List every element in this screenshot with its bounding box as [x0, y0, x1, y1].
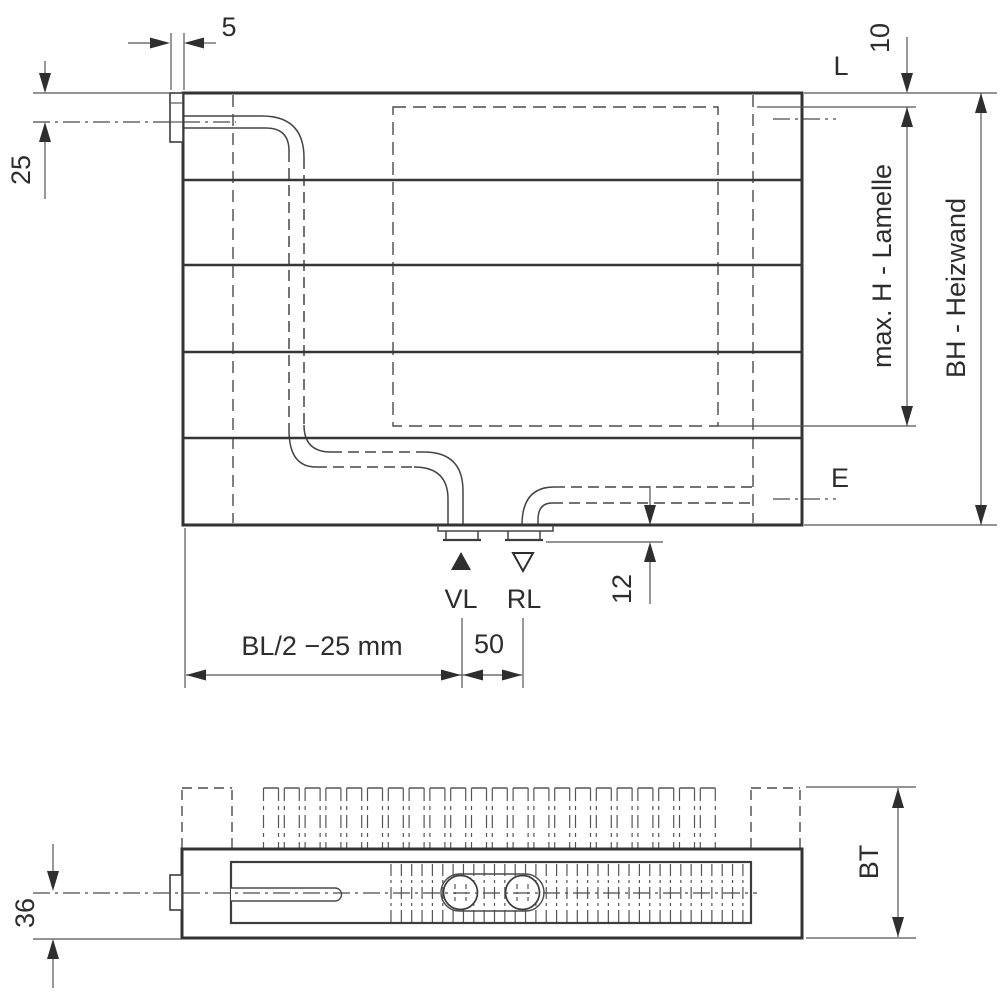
arrowhead — [644, 505, 656, 525]
flow-label: VL — [444, 584, 477, 614]
dim-pipe-axis-offset-label: 25 — [6, 155, 36, 185]
wall-bracket — [170, 93, 183, 142]
dim-lamelle-top-gap: 10 — [865, 23, 913, 93]
arrowhead — [502, 670, 522, 681]
flow-pipe-elbow-inner — [289, 430, 316, 467]
arrowhead — [39, 73, 51, 93]
arrowhead — [901, 406, 913, 426]
flow-pipe-entry-inner — [183, 128, 289, 151]
dim-bracket-width-label: 5 — [221, 12, 236, 42]
drain-connection-label: E — [831, 463, 849, 493]
arrowhead — [901, 73, 913, 93]
vent-connection-label: L — [833, 51, 848, 81]
arrowhead — [186, 670, 206, 681]
dim-axis-to-front: 36 — [10, 844, 182, 988]
top-pipe — [231, 888, 342, 901]
dimensions-front: 5 25 10 max. H - Lamell — [6, 12, 997, 688]
dim-max-lamelle-height-label: max. H - Lamelle — [867, 164, 897, 368]
piping — [183, 116, 752, 525]
dim-heizwand-height-label: BH - Heizwand — [941, 198, 971, 378]
flow-pipe-drop-outer — [424, 452, 463, 525]
arrowhead — [892, 788, 904, 808]
arrowhead — [975, 505, 987, 525]
dim-connector-projection-label: 12 — [607, 574, 637, 604]
flow-pipe-drop-inner — [414, 467, 448, 525]
top-pipe-end-cap — [335, 888, 342, 901]
flow-direction-icon — [451, 552, 471, 570]
return-direction-icon — [513, 553, 533, 571]
arrowhead — [892, 917, 904, 937]
dim-connector-spacing-label: 50 — [474, 629, 504, 659]
return-label: RL — [507, 584, 542, 614]
arrowhead — [47, 939, 59, 959]
arrowhead — [39, 122, 51, 142]
center-lines — [33, 119, 836, 499]
arrowhead — [901, 107, 913, 127]
return-pipe-elbow-inner — [538, 503, 552, 525]
arrowhead — [441, 670, 461, 681]
dim-flow-position-label: BL/2 −25 mm — [241, 631, 402, 661]
arrowhead — [184, 38, 204, 49]
arrowhead — [644, 542, 656, 562]
dim-pipe-axis-offset: 25 — [6, 61, 170, 199]
hidden-end-boxes — [182, 788, 800, 848]
convector-fins — [264, 788, 716, 848]
top-view: 36 BT — [10, 787, 916, 988]
arrowhead — [463, 670, 483, 681]
front-view: 5 25 10 max. H - Lamell — [6, 12, 997, 688]
lamelle-max-region — [393, 107, 718, 426]
dim-lamelle-top-gap-label: 10 — [865, 23, 895, 53]
drawing-page: 5 25 10 max. H - Lamell — [0, 0, 1000, 1000]
flow-stub — [446, 531, 478, 540]
connection-stubs — [438, 525, 553, 571]
arrowhead — [150, 38, 170, 49]
arrowhead — [975, 93, 987, 113]
dim-build-depth-label: BT — [854, 845, 884, 880]
top-pipe-fill — [231, 888, 335, 901]
dim-axis-to-front-label: 36 — [10, 898, 40, 928]
arrowhead — [47, 871, 59, 891]
dim-bracket-width: 5 — [128, 12, 237, 90]
panel-body — [170, 93, 802, 525]
dim-heizwand-height: BH - Heizwand — [804, 93, 997, 525]
hidden-edges — [233, 95, 753, 523]
dim-build-depth: BT — [806, 787, 916, 938]
heizwand-technical-drawing: 5 25 10 max. H - Lamell — [0, 0, 1000, 1000]
dim-max-lamelle-height: max. H - Lamelle — [716, 107, 916, 426]
return-stub — [508, 531, 540, 540]
panel-outline — [183, 93, 802, 525]
